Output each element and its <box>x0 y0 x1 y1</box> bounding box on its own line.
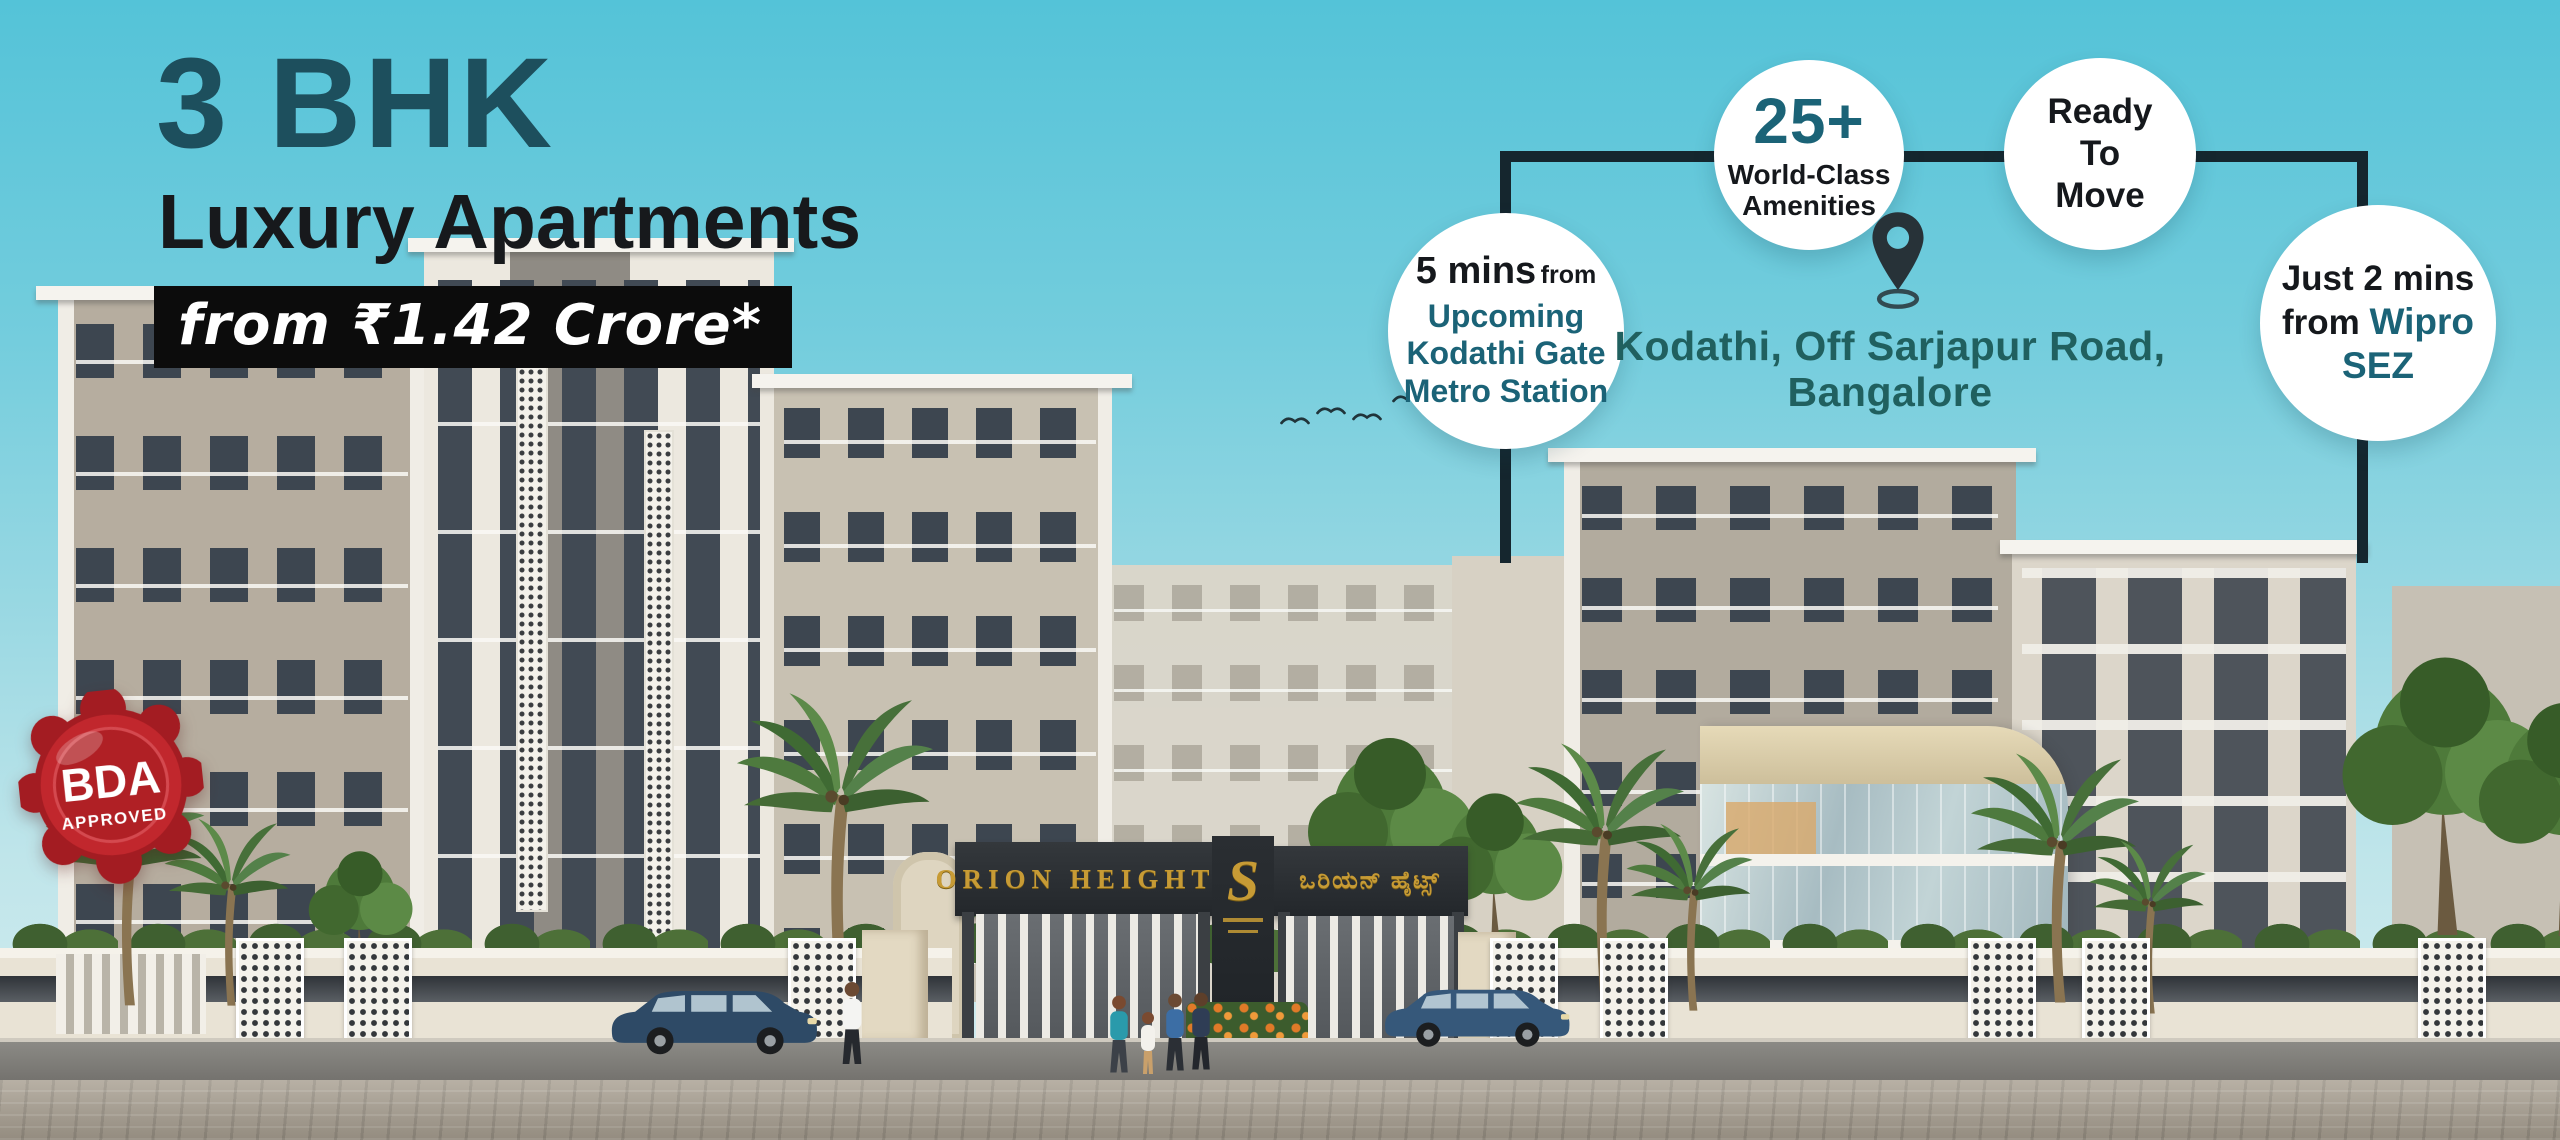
plaque-bar <box>1228 930 1258 933</box>
callout-ready-to-move: Ready To Move <box>2004 58 2196 250</box>
banner: ORION HEIGHTS ಒರಿಯನ್ ಹೈಟ್ಸ್ S <box>0 0 2560 1140</box>
bird-icon <box>1316 404 1346 416</box>
ready-label: Ready To Move <box>2041 91 2159 217</box>
project-name-sign: ORION HEIGHTS <box>936 864 1237 895</box>
metro-duration: 5 mins <box>1416 250 1536 292</box>
lattice-pillar <box>2418 938 2486 1048</box>
location-text: Kodathi, Off Sarjapur Road, Bangalore <box>1540 324 2240 416</box>
bird-icon <box>1280 414 1310 426</box>
gate-post <box>962 912 974 1042</box>
road-asphalt <box>0 1038 2560 1086</box>
road-cobblestones <box>0 1080 2560 1140</box>
plaque-bar <box>1223 918 1263 922</box>
location-pin-icon <box>1862 210 1934 310</box>
lattice-pillar <box>236 938 304 1048</box>
suv-blue-right <box>1378 982 1574 1048</box>
lattice-pillar <box>344 938 412 1048</box>
person-child <box>1136 1012 1160 1076</box>
building-middle-roof <box>752 374 1132 388</box>
gate-beam-right: ಒರಿಯನ್ ಹೈಟ್ಸ್ <box>1272 846 1468 916</box>
person-woman <box>1104 994 1134 1076</box>
headline-subtitle: Luxury Apartments <box>158 184 861 261</box>
price-ribbon: from ₹1.42 Crore* <box>154 286 792 368</box>
person-man <box>1186 988 1216 1076</box>
metro-line1: 5 mins from <box>1416 252 1596 290</box>
project-name-sign-kannada: ಒರಿಯನ್ ಹೈಟ್ಸ್ <box>1299 868 1440 895</box>
headline-bhk: 3 BHK <box>156 40 555 168</box>
metro-connector: from <box>1541 261 1597 289</box>
building-right-roof <box>1548 448 2036 462</box>
project-monogram: S <box>1227 852 1259 910</box>
lattice-pillar <box>1600 938 1668 1048</box>
bda-approved-seal: BDA APPROVED <box>10 681 215 907</box>
lattice-strip <box>516 348 548 912</box>
location-line1: Kodathi, Off Sarjapur Road, <box>1540 324 2240 370</box>
suv-blue-left <box>604 982 822 1056</box>
building-wing-roof <box>2000 540 2368 554</box>
wipro-destination: Wipro SEZ <box>2342 301 2474 386</box>
bird-icon <box>1352 410 1382 422</box>
location-line2: Bangalore <box>1540 370 2240 416</box>
building-left2-windows <box>438 280 760 997</box>
gate-beam-left: ORION HEIGHTS <box>955 842 1217 916</box>
person-walking <box>836 980 868 1068</box>
lattice-pillar <box>2082 938 2150 1048</box>
connector-line-horizontal <box>1502 151 2368 162</box>
wipro-text: Just 2 mins from Wipro SEZ <box>2274 258 2482 389</box>
amenities-count: 25+ <box>1753 89 1865 153</box>
badge-title: BDA <box>59 750 163 812</box>
callout-wipro: Just 2 mins from Wipro SEZ <box>2260 205 2496 441</box>
lattice-pillar <box>1968 938 2036 1048</box>
